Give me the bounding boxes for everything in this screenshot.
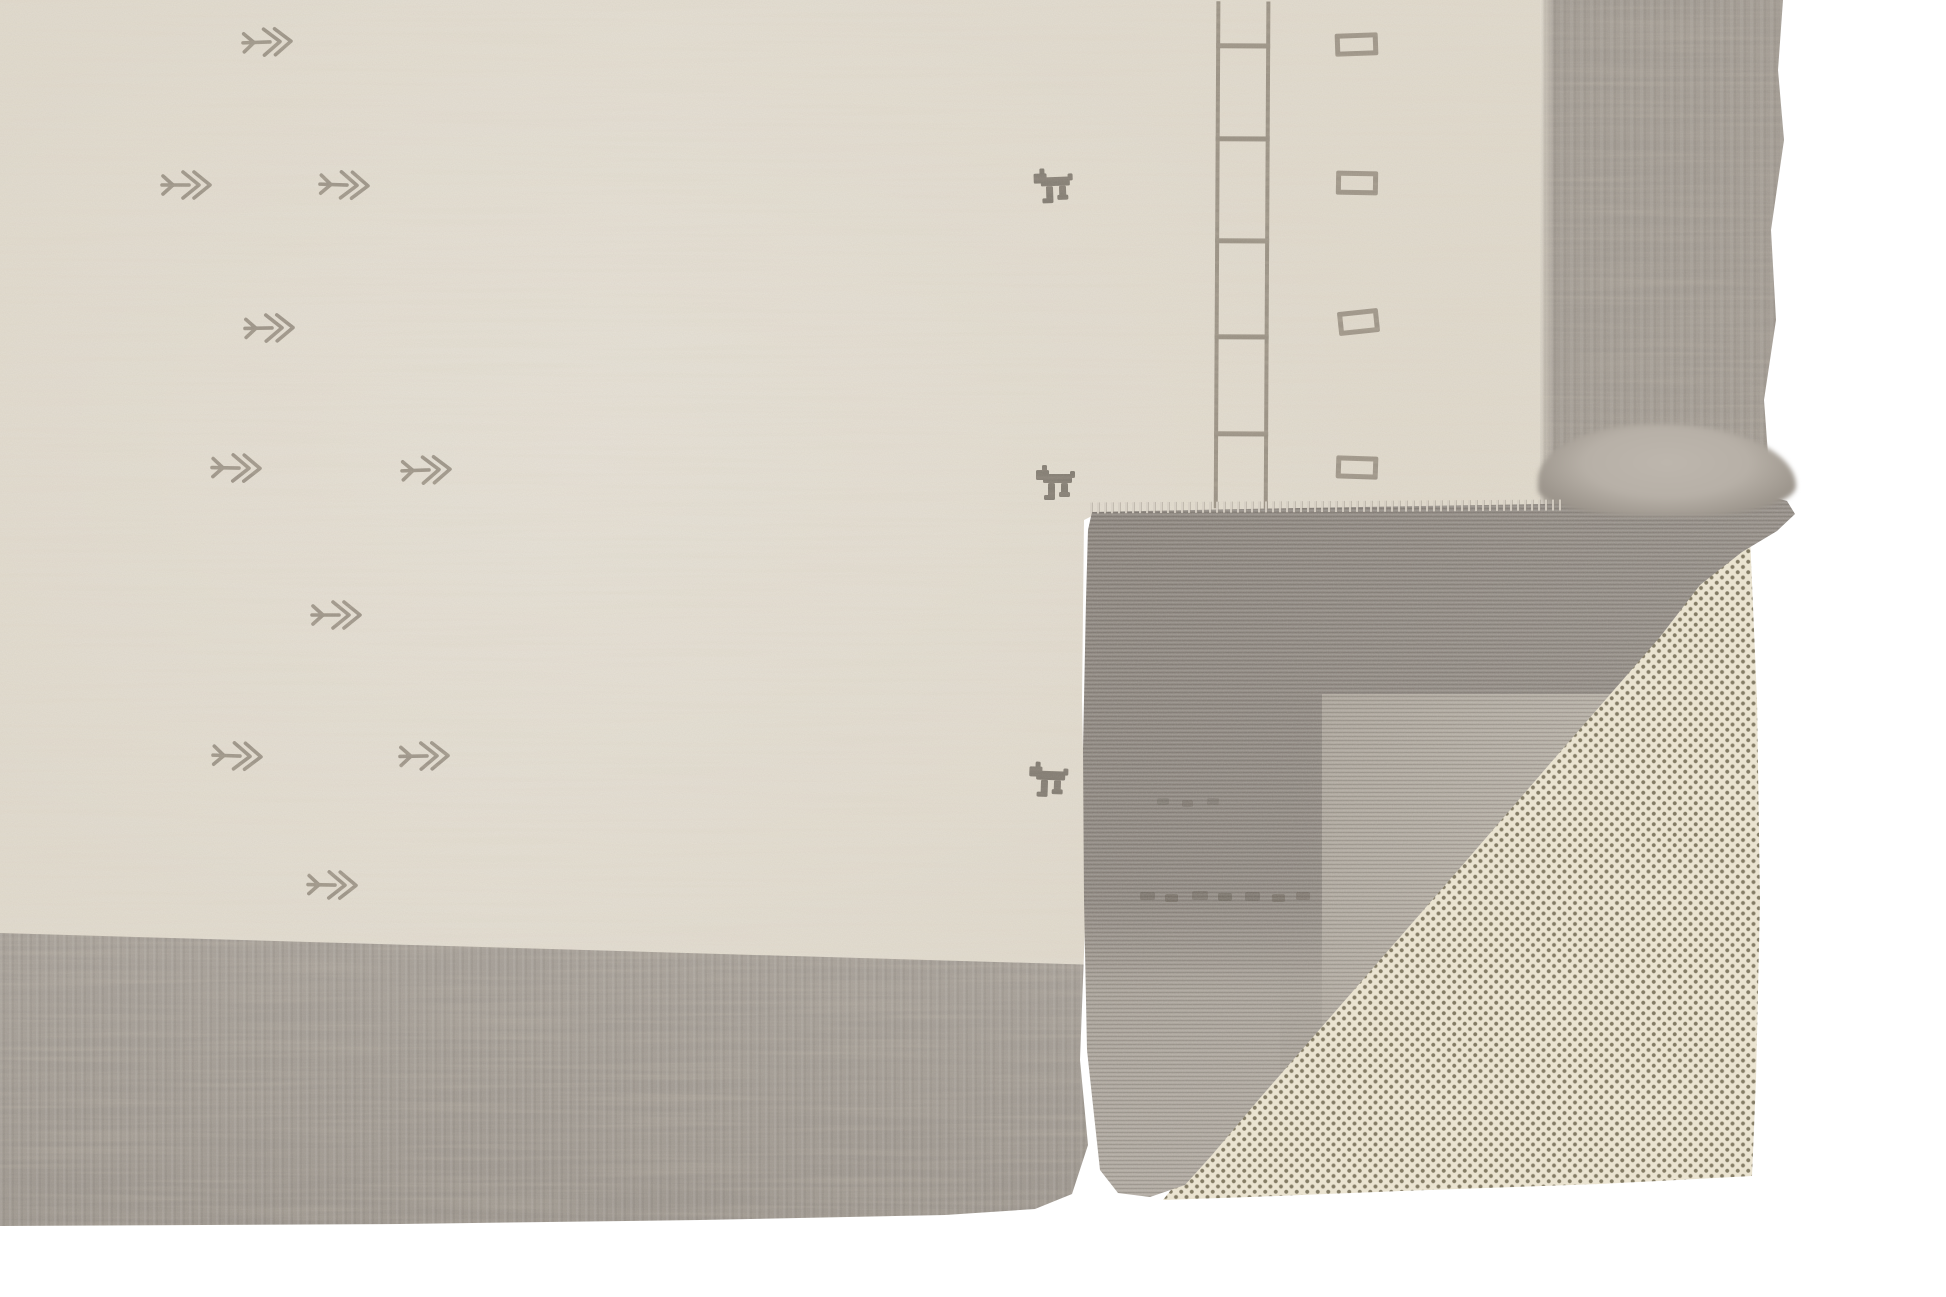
rectangle-motif — [1336, 171, 1378, 196]
back-mark — [1140, 892, 1155, 900]
rectangle-motif — [1336, 455, 1379, 479]
ladder-rung — [1216, 136, 1270, 141]
back-mark — [1207, 798, 1219, 805]
back-mark — [1182, 800, 1193, 807]
ladder-rung — [1215, 334, 1269, 339]
back-mark — [1165, 894, 1178, 902]
rectangle-motif — [1337, 308, 1380, 336]
back-mark — [1272, 894, 1285, 902]
back-mark — [1157, 798, 1169, 805]
ladder-rung — [1214, 431, 1268, 436]
rectangle-motif — [1335, 32, 1379, 56]
back-mark — [1296, 892, 1310, 900]
ladder-rung — [1215, 238, 1269, 243]
ladder-rung — [1216, 43, 1270, 48]
rug-product-photo — [0, 0, 1946, 1297]
back-mark — [1245, 892, 1260, 901]
back-mark — [1192, 891, 1208, 900]
back-mark — [1218, 893, 1232, 901]
